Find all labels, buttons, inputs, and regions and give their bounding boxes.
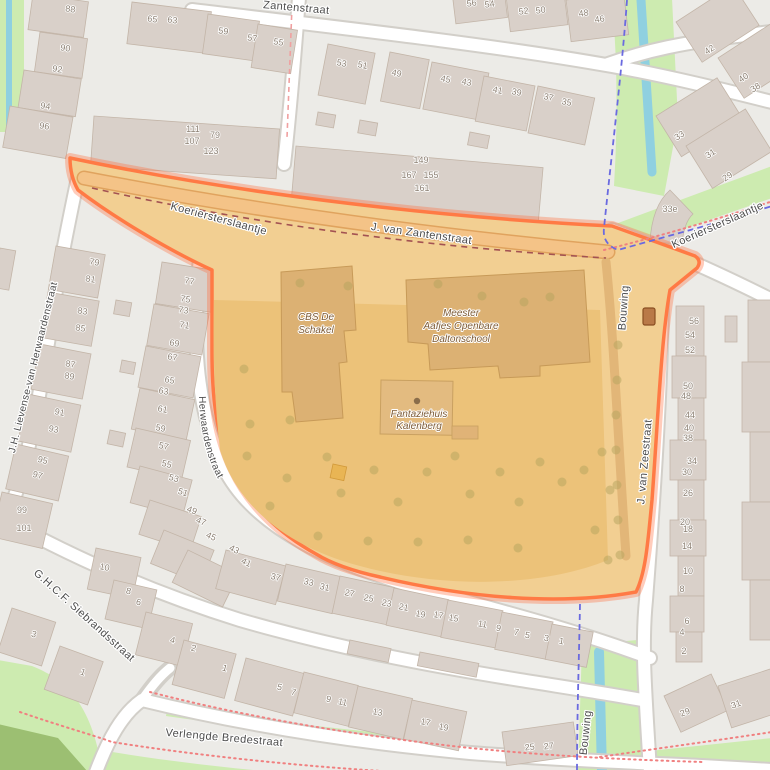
tree-icon	[243, 452, 252, 461]
house-number: 37	[543, 91, 555, 103]
tree-icon	[323, 453, 332, 462]
house-number: 85	[75, 322, 87, 334]
tree-icon	[614, 516, 623, 525]
tree-icon	[414, 538, 423, 547]
house-number: 94	[40, 100, 51, 111]
house-number: 155	[423, 170, 438, 180]
house-number: 27	[344, 587, 356, 599]
house-number: 10	[99, 561, 111, 573]
house-number: 44	[685, 410, 695, 420]
house-number: 50	[683, 381, 693, 391]
house-number: 23	[381, 597, 393, 609]
house-number: 75	[180, 293, 192, 305]
poi-label: Schakel	[298, 325, 334, 336]
tree-icon	[614, 341, 623, 350]
tree-icon	[434, 280, 443, 289]
house-number: 107	[184, 136, 199, 146]
house-number: 91	[54, 406, 66, 418]
house-number: 8	[679, 584, 684, 594]
house-number: 21	[398, 601, 410, 613]
tree-icon	[515, 498, 524, 507]
tree-icon	[612, 411, 621, 420]
house-number: 56	[689, 316, 699, 326]
house-number: 92	[52, 63, 63, 74]
tree-icon	[478, 292, 487, 301]
house-number: 13	[372, 706, 384, 718]
house-number: 81	[85, 273, 97, 285]
tree-icon	[451, 452, 460, 461]
house-number: 17	[433, 609, 445, 621]
tree-icon	[296, 279, 305, 288]
house-number: 63	[158, 385, 170, 397]
small-shed	[452, 426, 478, 439]
house-number: 43	[461, 76, 473, 88]
tree-icon	[266, 502, 275, 511]
house-number: 99	[17, 505, 27, 515]
house-number: 41	[492, 84, 504, 96]
house-number: 49	[391, 67, 403, 79]
gate-icon	[643, 308, 655, 325]
tree-icon	[466, 490, 475, 499]
house-number: 71	[179, 319, 191, 331]
house-number: 33e	[662, 204, 677, 214]
house-number: 90	[60, 42, 71, 53]
house-number: 123	[203, 146, 218, 156]
house-number: 83	[77, 305, 89, 317]
tree-icon	[591, 526, 600, 535]
house-number: 27	[543, 741, 554, 752]
house-number: 25	[524, 742, 535, 753]
tree-icon	[394, 498, 403, 507]
house-number: 15	[448, 612, 460, 624]
house-number: 69	[169, 337, 181, 349]
tree-icon	[464, 536, 473, 545]
house-number: 59	[155, 422, 167, 434]
tree-icon	[580, 466, 589, 475]
house-number: 19	[438, 721, 450, 733]
tree-icon	[613, 481, 622, 490]
house-number: 77	[184, 275, 196, 287]
house-number: 87	[65, 358, 77, 370]
tree-icon	[613, 376, 622, 385]
poi-label: Kalenberg	[396, 421, 442, 432]
house-number: 51	[357, 59, 369, 71]
tree-icon	[612, 446, 621, 455]
house-number: 19	[415, 608, 427, 620]
tree-icon	[364, 537, 373, 546]
house-number: 52	[518, 5, 529, 16]
tree-icon	[536, 458, 545, 467]
tree-icon	[337, 489, 346, 498]
poi-label: CBS De	[298, 312, 335, 323]
house-number: 167	[401, 170, 416, 180]
house-number: 88	[65, 3, 76, 14]
house-number: 46	[594, 13, 605, 24]
tree-icon	[520, 298, 529, 307]
house-number: 25	[363, 592, 375, 604]
house-number: 54	[484, 0, 495, 10]
house-number: 48	[578, 7, 589, 18]
house-number: 79	[210, 130, 220, 140]
house-number: 65	[164, 374, 176, 386]
house-number: 30	[682, 467, 692, 477]
tree-icon	[558, 478, 567, 487]
tree-icon	[423, 468, 432, 477]
house-number: 65	[147, 13, 158, 24]
house-number: 61	[157, 403, 169, 415]
house-number: 26	[683, 488, 693, 498]
tree-icon	[246, 420, 255, 429]
house-number: 38	[683, 433, 693, 443]
map-container[interactable]: 8890929496656359575553514945434139373556…	[0, 0, 770, 770]
tree-icon	[616, 551, 625, 560]
house-number: 59	[218, 25, 229, 36]
tree-icon	[240, 365, 249, 374]
house-number: 79	[89, 256, 101, 268]
house-number: 11	[477, 618, 488, 630]
small-shed-orange	[330, 464, 347, 481]
house-number: 101	[16, 523, 31, 533]
tree-icon	[604, 556, 613, 565]
house-number: 40	[684, 423, 694, 433]
map-canvas[interactable]: 8890929496656359575553514945434139373556…	[0, 0, 770, 770]
house-number: 18	[683, 524, 693, 534]
house-number: 57	[247, 32, 258, 43]
house-number: 56	[466, 0, 477, 9]
house-number: 67	[167, 351, 179, 363]
house-number: 93	[48, 423, 60, 435]
tree-icon	[546, 293, 555, 302]
poi-label: Meester	[443, 308, 480, 319]
poi-label: Fantaziehuis	[391, 409, 448, 420]
poi-label: Daltonschool	[432, 334, 491, 345]
house-number: 10	[683, 566, 693, 576]
house-number: 50	[535, 4, 546, 15]
tree-icon	[283, 474, 292, 483]
house-number: 55	[273, 36, 285, 48]
house-number: 63	[167, 14, 178, 25]
tree-icon	[344, 282, 353, 291]
house-number: 161	[414, 183, 429, 193]
tree-icon	[514, 544, 523, 553]
tree-icon	[370, 466, 379, 475]
house-number: 53	[336, 57, 348, 69]
house-number: 54	[685, 330, 695, 340]
house-number: 52	[685, 345, 695, 355]
house-number: 111	[186, 124, 200, 134]
house-number: 45	[440, 73, 452, 85]
house-number: 4	[679, 627, 684, 637]
tree-icon	[496, 468, 505, 477]
house-number: 89	[64, 370, 76, 382]
house-number: 17	[420, 716, 432, 728]
tree-icon	[286, 416, 295, 425]
house-number: 6	[684, 616, 689, 626]
house-number: 96	[39, 120, 50, 131]
house-number: 35	[561, 96, 573, 108]
tree-icon	[598, 448, 607, 457]
house-number: 34	[687, 456, 697, 466]
house-number: 149	[413, 155, 428, 165]
house-number: 73	[178, 304, 190, 316]
poi-label: Aafjes Openbare	[422, 321, 498, 332]
tree-icon	[314, 532, 323, 541]
house-number: 2	[681, 646, 686, 656]
house-number: 48	[681, 391, 691, 401]
house-number: 14	[682, 541, 692, 551]
icon-layer	[643, 308, 655, 325]
poi-dot	[414, 398, 420, 404]
house-number: 39	[511, 86, 523, 98]
